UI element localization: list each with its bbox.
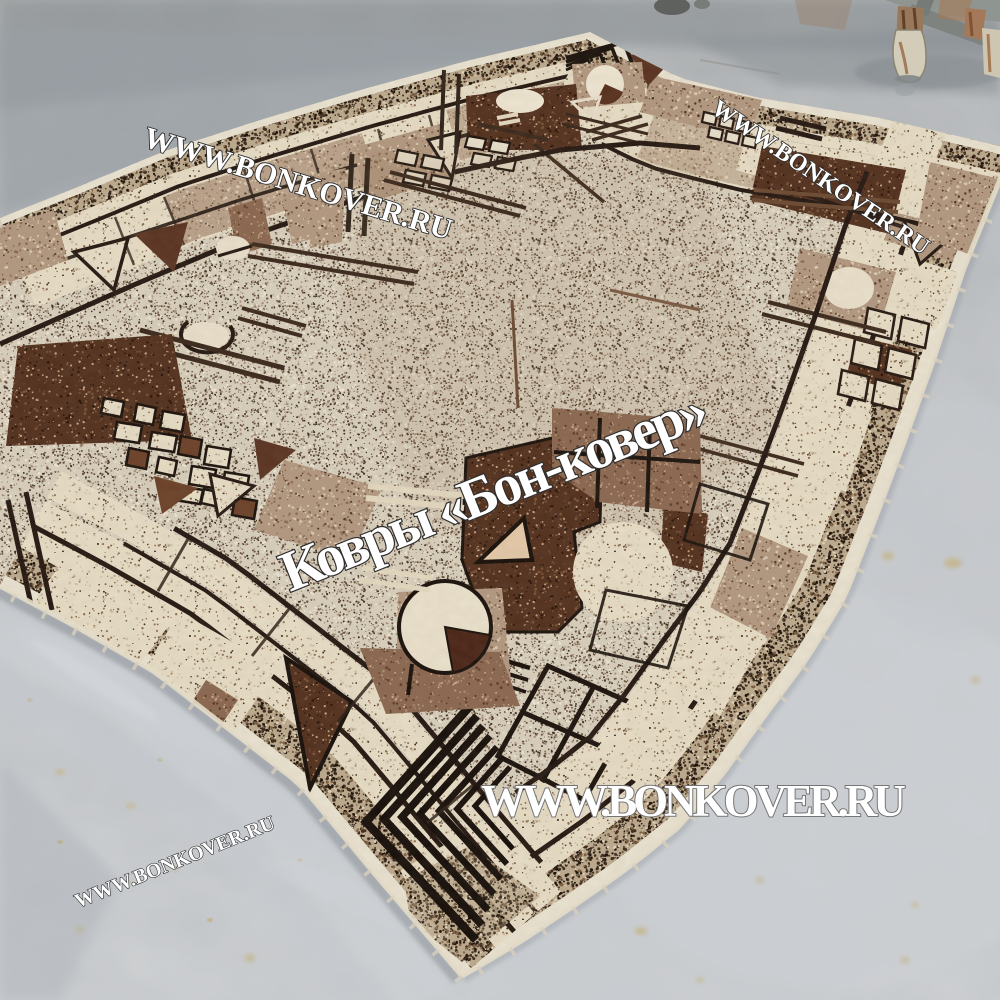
svg-text:WWW.BONKOVER.RU: WWW.BONKOVER.RU (481, 776, 905, 826)
